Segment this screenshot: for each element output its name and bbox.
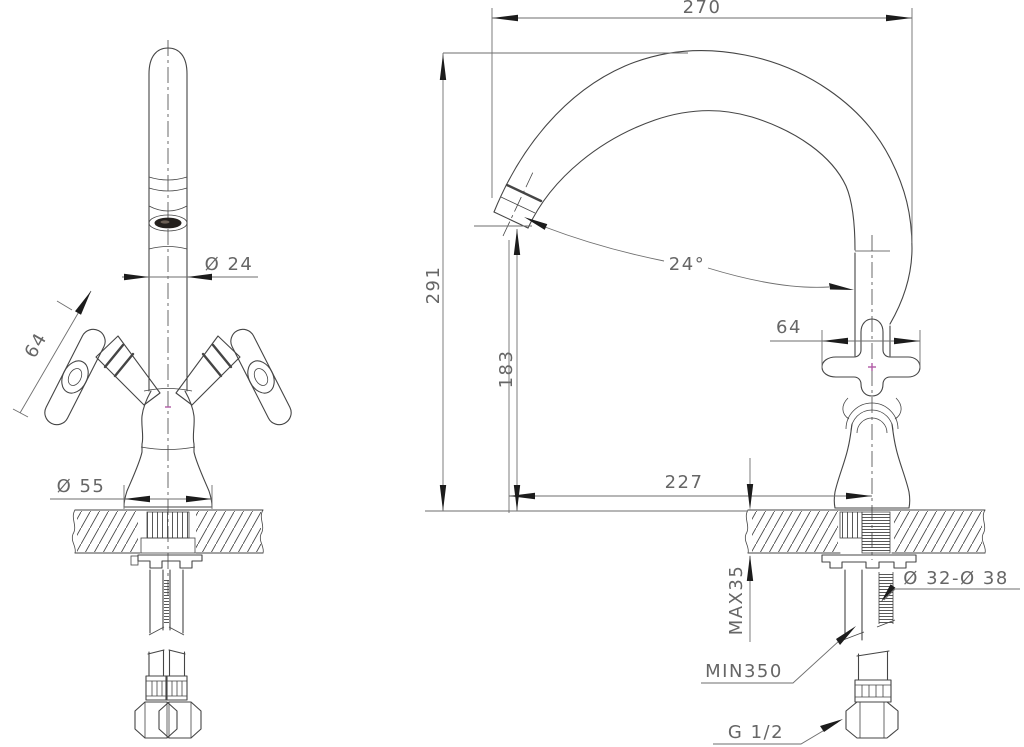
max-counter-thickness-label: MAX35 bbox=[726, 565, 747, 636]
dim-overall-height: 291 bbox=[423, 53, 748, 511]
front-supply-hoses bbox=[149, 570, 184, 635]
front-mounting-hardware bbox=[131, 512, 202, 568]
hex-nut bbox=[159, 702, 201, 738]
dim-spout-diameter: Ø 24 bbox=[122, 254, 258, 280]
spout-diameter-label: Ø 24 bbox=[205, 254, 254, 275]
connection-thread-label: G 1/2 bbox=[728, 722, 784, 743]
outlet-angle-label: 24° bbox=[669, 254, 705, 275]
reach-to-axis-label: 227 bbox=[665, 472, 704, 493]
handle-center-mark bbox=[868, 363, 876, 371]
side-view: 270 291 183 24° bbox=[423, 0, 1020, 744]
front-view: Ø 24 64 Ø 55 bbox=[13, 40, 295, 738]
dim-handle-span-front: 64 bbox=[13, 291, 91, 417]
outlet-height-label: 183 bbox=[496, 350, 517, 389]
min-clearance-label: MIN350 bbox=[705, 661, 783, 682]
hex-nut bbox=[846, 702, 898, 738]
mounting-hole-label: Ø 32-Ø 38 bbox=[903, 568, 1009, 589]
label-connection-thread: G 1/2 bbox=[713, 719, 843, 744]
technical-drawing: Ø 24 64 Ø 55 bbox=[0, 0, 1024, 747]
side-spout bbox=[494, 50, 912, 356]
dim-outlet-angle: 24° bbox=[524, 217, 854, 290]
dim-handle-span-side: 64 bbox=[770, 317, 920, 368]
front-hose-ends bbox=[135, 650, 201, 738]
label-mounting-hole: Ø 32-Ø 38 bbox=[881, 568, 1020, 602]
handle-span-label-side: 64 bbox=[776, 317, 802, 338]
dim-reach-to-axis: 227 bbox=[509, 240, 872, 513]
spout-reach-label: 270 bbox=[683, 0, 722, 18]
dim-outlet-height: 183 bbox=[474, 226, 532, 511]
side-hose-end bbox=[846, 651, 898, 738]
hex-nut bbox=[135, 702, 177, 738]
side-handle bbox=[822, 319, 920, 433]
handle-span-label-front: 64 bbox=[21, 329, 52, 362]
overall-height-label: 291 bbox=[423, 266, 444, 305]
dim-max-counter-thickness: MAX35 bbox=[726, 458, 753, 642]
label-min-clearance: MIN350 bbox=[701, 626, 856, 683]
dim-spout-reach: 270 bbox=[492, 0, 912, 243]
base-diameter-label: Ø 55 bbox=[57, 476, 106, 497]
